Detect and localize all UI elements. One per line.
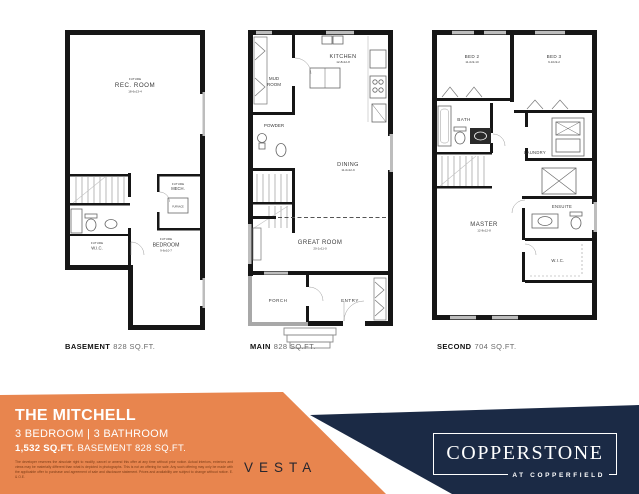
rec-room-future-label: FUTURE (129, 77, 141, 81)
pedestal-sink-icon (258, 134, 267, 143)
bottom-banner: THE MITCHELL 3 BEDROOM | 3 BATHROOM 1,53… (0, 390, 639, 494)
bed2-dims: 11-0x9-10 (465, 60, 479, 64)
entry-closet-icon (374, 278, 386, 320)
main-window-icons (248, 31, 393, 275)
flyer-page: FUTURE REC. ROOM 18-6x13-4 FUTURE MECH. … (0, 0, 639, 494)
copperstone-wordmark: COPPERSTONE (434, 434, 616, 472)
floorplan-main: MUD ROOM KITCHEN 12-8x12-8 POWDER DINING… (248, 28, 393, 358)
bed3-label: BED 3 (547, 54, 562, 59)
porch-label: PORCH (269, 298, 288, 303)
kitchen-sink-icon (322, 36, 332, 44)
main-caption-name: MAIN (250, 342, 271, 351)
basement-walls (65, 30, 205, 330)
basement-caption-sqft: 828 SQ.FT. (113, 342, 155, 351)
second-walls (432, 30, 597, 320)
powder-fixture-icons (258, 134, 287, 157)
main-walls (248, 30, 393, 326)
floorplan-basement: FUTURE REC. ROOM 18-6x13-4 FUTURE MECH. … (65, 28, 205, 333)
main-caption: MAIN828 SQ.FT. (250, 342, 316, 351)
great-room-dims: 20-1x11-0 (313, 247, 327, 251)
tub-icon (438, 106, 451, 146)
plan-area-bold: 1,532 SQ.FT. (15, 443, 75, 454)
toilet-icon (276, 144, 286, 157)
ensuite-fixture-icons (532, 212, 582, 229)
fridge-icon (370, 50, 386, 68)
disclaimer-text: The developer reserves the absolute righ… (15, 460, 233, 480)
bedroom-dims: 9-6x10-7 (160, 249, 172, 253)
basement-bath-icons (70, 209, 130, 236)
plan-area-line: 1,532 SQ.FT. BASEMENT 828 SQ.FT. (15, 443, 186, 454)
bay-window-icon (253, 228, 261, 260)
laundry-appliance-icons (552, 118, 584, 156)
dining-window-gap (387, 136, 390, 170)
linen-box-icon (542, 168, 576, 194)
rec-room-dims: 18-6x13-4 (128, 90, 142, 94)
toilet-icon (455, 132, 465, 144)
bed2-label: BED 2 (465, 54, 480, 59)
furnace-label: FURNACE (172, 206, 184, 209)
laundry-label: LAUNDRY (524, 150, 546, 155)
front-door-gap (343, 321, 365, 326)
second-bath-icons (438, 106, 491, 146)
main-door-arcs (295, 58, 364, 321)
bath-counter (470, 128, 491, 144)
main-stairs-icon (250, 174, 295, 228)
powder-label: POWDER (264, 123, 285, 128)
plan-area-rest: BASEMENT 828 SQ.FT. (78, 443, 186, 454)
great-room-label: GREAT ROOM (298, 240, 342, 246)
ensuite-label: ENSUITE (552, 204, 572, 209)
master-label: MASTER (470, 222, 498, 228)
toilet-icon (571, 217, 581, 229)
rec-room-label: REC. ROOM (115, 82, 155, 89)
ensuite-window-gap (591, 204, 594, 230)
wic-label: W.I.C. (91, 246, 102, 251)
toilet-icon (86, 219, 96, 231)
mudroom-closet-icon (254, 37, 267, 104)
mech-label: MECH. (171, 186, 185, 191)
bath-label: BATH (457, 117, 471, 122)
mudroom-label-2: ROOM (267, 82, 281, 87)
basement-stairs-icon (70, 174, 130, 206)
wic-future-label: FUTURE (91, 241, 103, 245)
master-dims: 12-8x12-8 (477, 229, 491, 233)
bedroom-future-label: FUTURE (160, 237, 172, 241)
basement-door-arcs (131, 242, 144, 255)
banner-text-block: THE MITCHELL 3 BEDROOM | 3 BATHROOM 1,53… (15, 407, 186, 454)
entry-label: ENTRY (341, 298, 359, 303)
sink-icon (538, 217, 552, 226)
plan-title: THE MITCHELL (15, 407, 186, 425)
main-caption-sqft: 828 SQ.FT. (274, 342, 316, 351)
second-caption: SECOND704 SQ.FT. (437, 342, 516, 351)
beam-line (250, 216, 388, 219)
kitchen-dims: 12-8x12-8 (336, 60, 350, 64)
copperstone-logo: COPPERSTONE AT COPPERFIELD (433, 433, 617, 475)
dining-dims: 11-0x12-9 (341, 168, 355, 172)
plan-subtitle: 3 BEDROOM | 3 BATHROOM (15, 428, 186, 440)
second-caption-sqft: 704 SQ.FT. (475, 342, 517, 351)
sink-icon (105, 220, 117, 229)
bed3-dims: 9-10x9-2 (548, 60, 560, 64)
basement-caption-name: BASEMENT (65, 342, 110, 351)
toilet-tank-icon (85, 214, 97, 218)
floorplan-second: BED 2 11-0x9-10 BED 3 9-10x9-2 BATH LAUN… (432, 28, 597, 320)
basement-caption: BASEMENT828 SQ.FT. (65, 342, 155, 351)
stove-icon (370, 76, 386, 98)
second-caption-name: SECOND (437, 342, 472, 351)
kitchen-icons (310, 36, 386, 122)
second-wic-label: W.I.C. (551, 258, 564, 263)
copperstone-tagline: AT COPPERFIELD (508, 472, 609, 479)
vesta-logo: VESTA (244, 460, 317, 475)
second-stairs-icon (437, 152, 492, 189)
vanity-icon (71, 209, 82, 233)
mudroom-label-1: MUD (269, 76, 280, 81)
